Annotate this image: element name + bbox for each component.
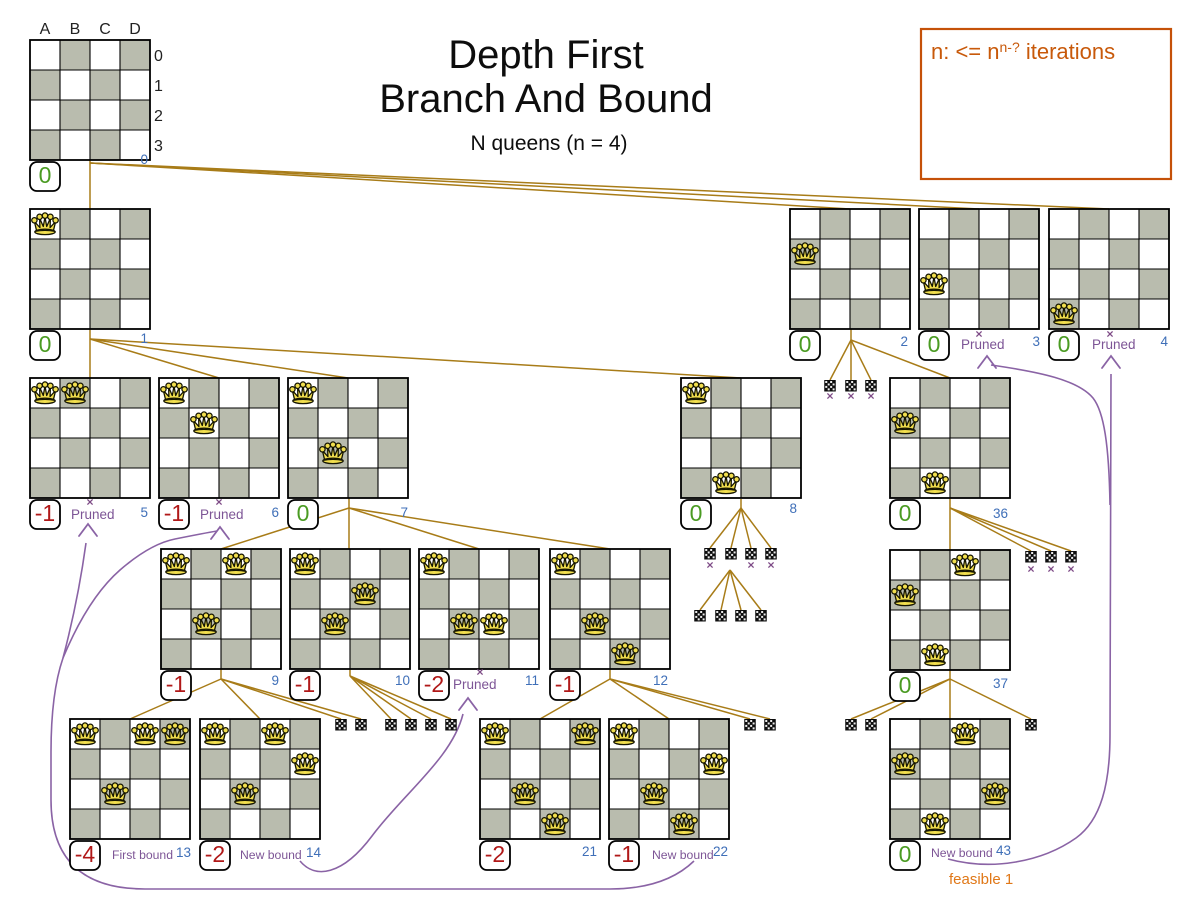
svg-text:14: 14: [306, 845, 322, 860]
svg-text:1: 1: [140, 331, 148, 346]
svg-text:C: C: [99, 21, 111, 38]
svg-text:21: 21: [582, 844, 597, 859]
svg-text:Branch And Bound: Branch And Bound: [379, 77, 713, 121]
svg-text:-1: -1: [555, 671, 575, 697]
svg-text:-2: -2: [485, 841, 505, 867]
svg-text:2: 2: [900, 334, 908, 349]
svg-text:0: 0: [39, 162, 52, 188]
svg-text:2: 2: [154, 108, 163, 125]
svg-text:43: 43: [996, 843, 1011, 858]
svg-text:-4: -4: [75, 841, 96, 867]
svg-text:Depth First: Depth First: [448, 33, 644, 77]
svg-text:0: 0: [928, 331, 941, 357]
svg-text:N queens (n = 4): N queens (n = 4): [470, 132, 627, 155]
svg-text:1: 1: [154, 78, 163, 95]
svg-text:6: 6: [271, 505, 279, 520]
svg-text:Pruned: Pruned: [1092, 337, 1136, 352]
svg-text:3: 3: [154, 138, 163, 155]
svg-text:7: 7: [400, 505, 408, 520]
svg-text:3: 3: [1032, 334, 1040, 349]
svg-text:Pruned: Pruned: [961, 337, 1005, 352]
svg-text:9: 9: [271, 673, 279, 688]
svg-text:0: 0: [154, 48, 163, 65]
svg-text:Pruned: Pruned: [71, 507, 115, 522]
svg-text:5: 5: [140, 505, 148, 520]
svg-text:37: 37: [993, 676, 1008, 691]
svg-text:-1: -1: [295, 671, 315, 697]
svg-text:0: 0: [690, 500, 703, 526]
svg-text:A: A: [40, 21, 51, 38]
svg-text:0: 0: [799, 331, 812, 357]
svg-text:n: <= nn-? iterations: n: <= nn-? iterations: [931, 39, 1115, 64]
svg-text:-1: -1: [164, 500, 184, 526]
svg-text:10: 10: [395, 673, 410, 688]
svg-text:First bound: First bound: [112, 848, 173, 862]
svg-text:8: 8: [789, 501, 797, 516]
svg-text:12: 12: [653, 673, 668, 688]
svg-text:-2: -2: [424, 671, 444, 697]
svg-text:22: 22: [713, 844, 728, 859]
svg-text:New bound: New bound: [931, 846, 993, 860]
svg-text:0: 0: [39, 331, 52, 357]
svg-text:4: 4: [1160, 334, 1168, 349]
svg-text:-1: -1: [614, 841, 634, 867]
svg-text:New bound: New bound: [240, 848, 302, 862]
svg-text:13: 13: [176, 845, 191, 860]
svg-text:36: 36: [993, 506, 1008, 521]
svg-text:feasible 1: feasible 1: [949, 871, 1013, 888]
svg-text:Pruned: Pruned: [453, 677, 497, 692]
svg-text:-1: -1: [35, 500, 55, 526]
svg-text:0: 0: [899, 672, 912, 698]
svg-text:0: 0: [140, 152, 148, 167]
svg-text:0: 0: [1058, 331, 1071, 357]
svg-text:Pruned: Pruned: [200, 507, 244, 522]
svg-text:D: D: [129, 21, 141, 38]
svg-text:0: 0: [297, 500, 310, 526]
svg-text:0: 0: [899, 841, 912, 867]
svg-text:0: 0: [899, 500, 912, 526]
svg-text:New bound: New bound: [652, 848, 714, 862]
svg-text:-2: -2: [205, 841, 225, 867]
svg-text:11: 11: [525, 673, 539, 688]
svg-text:B: B: [70, 21, 81, 38]
svg-text:-1: -1: [166, 671, 186, 697]
